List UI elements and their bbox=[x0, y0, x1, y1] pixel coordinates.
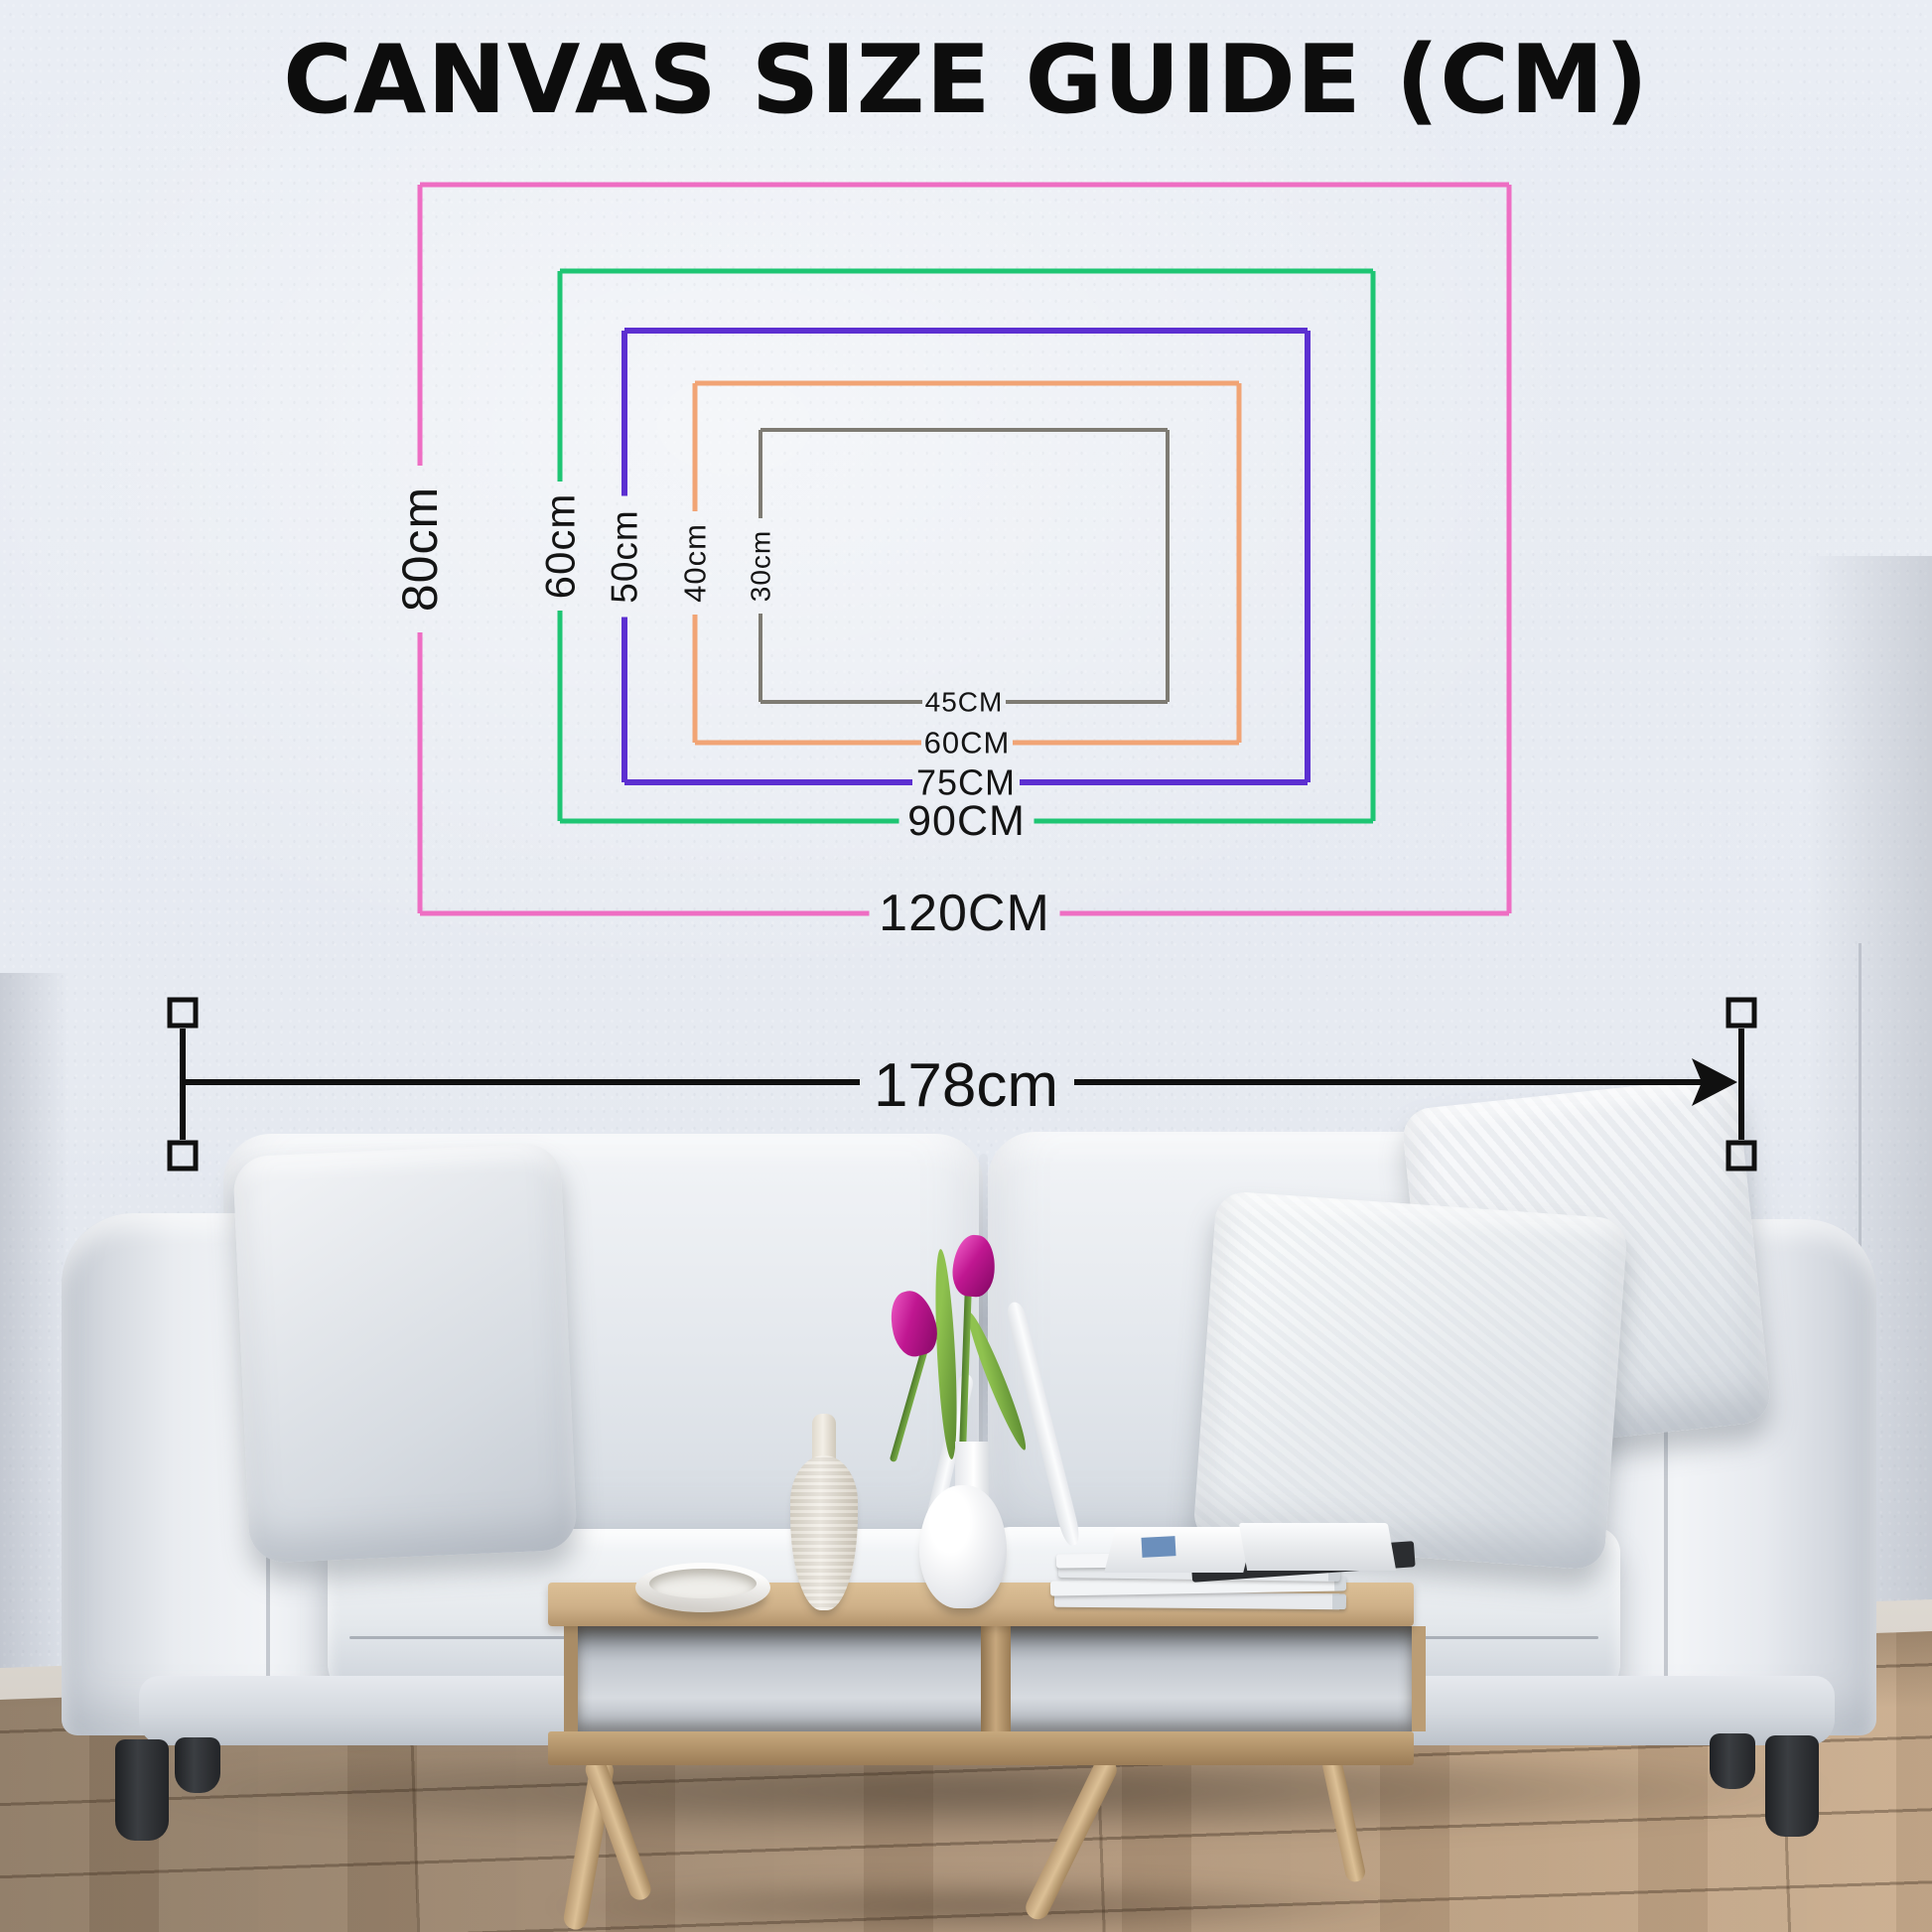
sofa-width-label: 178cm bbox=[857, 1050, 1075, 1121]
wall-shade-left bbox=[0, 973, 69, 1688]
sofa-leg bbox=[1710, 1733, 1755, 1789]
sofa-leg bbox=[1765, 1735, 1819, 1837]
table-shelf-divider bbox=[981, 1626, 1011, 1731]
throw-pillow-white bbox=[1192, 1190, 1628, 1571]
sofa-leg bbox=[175, 1737, 220, 1793]
throw-pillow-gray bbox=[232, 1143, 578, 1564]
table-bottom-shelf bbox=[548, 1731, 1414, 1765]
sofa-leg bbox=[115, 1739, 169, 1841]
decor-bowl-inner bbox=[649, 1569, 757, 1598]
open-book-picture bbox=[1141, 1536, 1175, 1558]
canvas-size-guide-poster: 80cm120CM60cm90CM50cm75CM40cm60CM30cm45C… bbox=[0, 0, 1932, 1932]
open-book-page-left bbox=[1104, 1527, 1254, 1573]
tulip-vase bbox=[919, 1485, 1007, 1608]
page-title: CANVAS SIZE GUIDE (CM) bbox=[0, 26, 1932, 135]
table-floor-shadow bbox=[536, 1878, 1430, 1932]
open-book-page-right bbox=[1239, 1523, 1396, 1571]
